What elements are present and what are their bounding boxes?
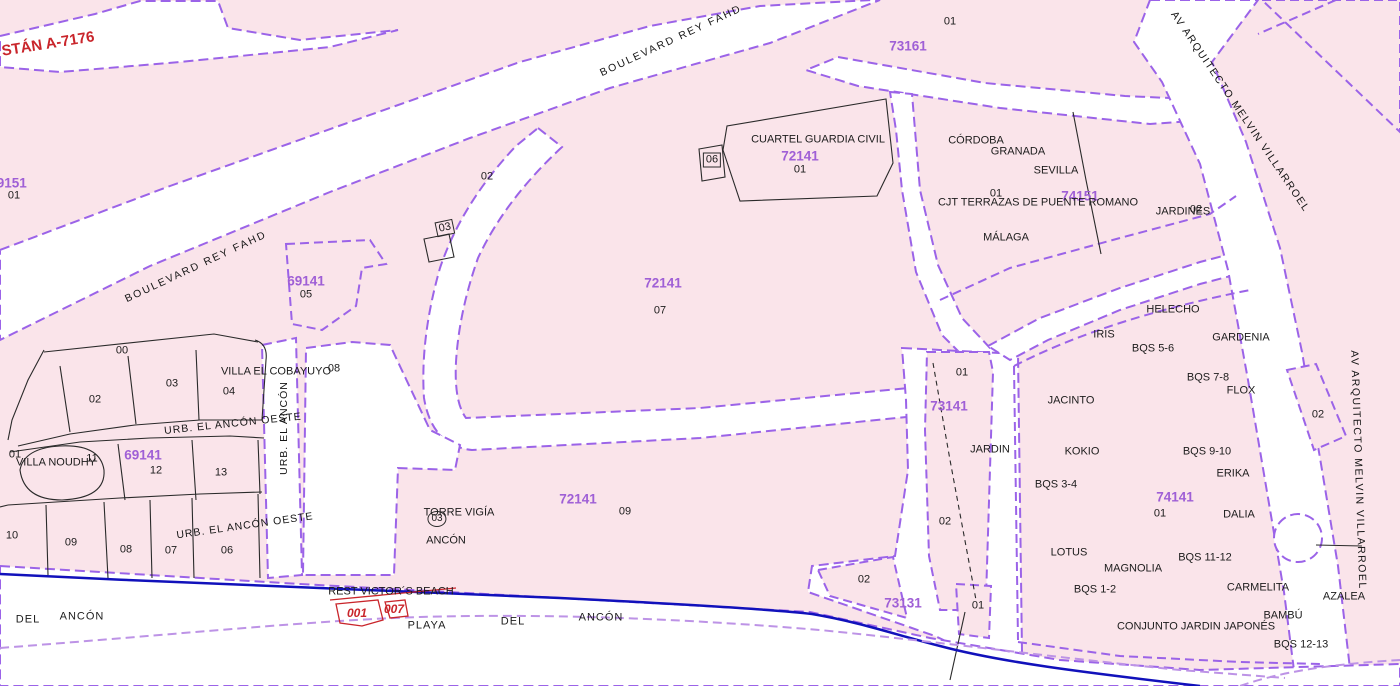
place-erika: ERIKA	[1216, 469, 1249, 480]
parcel-ref-73131: 73131	[884, 596, 922, 610]
place-dalia: DALIA	[1223, 510, 1255, 521]
parcel-ref-69151: 69151	[0, 176, 27, 190]
place-malaga: MÁLAGA	[983, 233, 1029, 244]
parcel-ref-72141-09: 72141	[559, 492, 597, 506]
parcel-ref-73141: 73141	[930, 399, 968, 413]
parcel-num-05: 05	[300, 290, 312, 301]
parcel-num-09-72141: 09	[619, 507, 631, 518]
beach-plot-ref-001: 001	[347, 607, 367, 619]
place-bqs-1-2: BQS 1-2	[1074, 585, 1116, 596]
place-villa-noudhy: VILLA NOUDHY	[16, 458, 96, 469]
place-flox: FLOX	[1227, 386, 1256, 397]
place-jardines: JARDINES	[1156, 207, 1210, 218]
parcel-num-01-73131: 01	[972, 601, 984, 612]
parcel-ref-69141-05: 69141	[287, 274, 325, 288]
place-granada: GRANADA	[991, 147, 1045, 158]
place-bqs-3-4: BQS 3-4	[1035, 480, 1077, 491]
cadastral-map[interactable]: BOULEVARD REY FAHDBOULEVARD REY FAHDAV A…	[0, 0, 1400, 686]
parcel-num-04: 04	[223, 387, 235, 398]
parcel-num-02-73141: 02	[939, 517, 951, 528]
parcel-num-01-74141: 01	[1154, 509, 1166, 520]
place-playa-ancon: ANCÓN	[579, 613, 624, 624]
parcel-num-07: 07	[654, 306, 666, 317]
street-boulevard-rey-fahd-east: BOULEVARD REY FAHD	[598, 3, 743, 78]
parcel-ref-74141: 74141	[1156, 490, 1194, 504]
parcel-num-09: 09	[65, 538, 77, 549]
place-bqs-9-10: BQS 9-10	[1183, 447, 1231, 458]
place-playa: PLAYA	[408, 621, 447, 632]
place-iris: IRIS	[1093, 330, 1114, 341]
place-azalea: AZALEA	[1323, 592, 1365, 603]
place-bqs-12-13: BQS 12-13	[1274, 640, 1328, 651]
place-lotus: LOTUS	[1051, 548, 1088, 559]
parcel-num-03-box: 03	[435, 219, 456, 237]
place-ancon-torre: ANCÓN	[426, 536, 466, 547]
place-jacinto: JACINTO	[1048, 396, 1095, 407]
street-av-arquitecto-melvin-villarroel-south: AV ARQUITECTO MELVIN VILLARROEL	[1349, 350, 1368, 590]
place-conjunto-jardin-japones: CONJUNTO JARDIN JAPONÉS	[1117, 622, 1275, 633]
place-cjt-terrazas-de-puente-romano: CJT TERRAZAS DE PUENTE ROMANO	[938, 198, 1138, 209]
parcel-num-00: 00	[116, 346, 128, 357]
place-del-ancon-del: DEL	[16, 615, 40, 626]
beach-plot-ref-007: 007	[384, 603, 404, 615]
place-sevilla: SEVILLA	[1034, 166, 1079, 177]
parcel-num-10: 10	[6, 531, 18, 542]
parcel-num-02: 02	[89, 395, 101, 406]
parcel-num-01-cuartel: 01	[794, 165, 806, 176]
parcel-ref-72141-07: 72141	[644, 276, 682, 290]
place-bqs-7-8: BQS 7-8	[1187, 373, 1229, 384]
street-av-arquitecto-melvin-villarroel-north: AV ARQUITECTO MELVIN VILLARROEL	[1169, 10, 1312, 215]
road-ref-a-7176: STÁN A-7176	[1, 29, 96, 58]
place-kokio: KOKIO	[1065, 447, 1100, 458]
place-carmelita: CARMELITA	[1227, 583, 1289, 594]
street-urb-el-ancon-oeste-2: URB. EL ANCÓN OESTE	[176, 511, 314, 541]
place-gardenia: GARDENIA	[1212, 333, 1269, 344]
parcel-num-06-row: 06	[221, 546, 233, 557]
parcel-num-03: 03	[166, 379, 178, 390]
place-torre-vigia: TORRE VIGÍA	[424, 508, 495, 519]
map-labels-layer: BOULEVARD REY FAHDBOULEVARD REY FAHDAV A…	[0, 0, 1400, 686]
place-helecho: HELECHO	[1146, 305, 1199, 316]
parcel-num-06-box: 06	[703, 153, 721, 168]
parcel-num-01-73161: 01	[944, 17, 956, 28]
parcel-num-02-avenue: 02	[1312, 410, 1324, 421]
place-magnolia: MAGNOLIA	[1104, 564, 1162, 575]
place-villa-el-cobayuyo: VILLA EL COBAYUYO	[221, 367, 331, 378]
street-boulevard-rey-fahd-west: BOULEVARD REY FAHD	[123, 229, 268, 304]
parcel-num-02-wedge: 02	[481, 172, 493, 183]
parcel-ref-73161: 73161	[889, 39, 927, 53]
parcel-num-01-69151: 01	[8, 191, 20, 202]
street-urb-el-ancon: URB. EL ANCÓN	[279, 381, 290, 475]
place-bqs-5-6: BQS 5-6	[1132, 344, 1174, 355]
place-playa-del: DEL	[501, 617, 525, 628]
place-rest-victors-beach: REST VICTOR´S BEACH	[328, 587, 454, 598]
parcel-num-02-73131: 02	[858, 575, 870, 586]
parcel-ref-69141-sur: 69141	[124, 448, 162, 462]
place-bqs-11-12: BQS 11-12	[1178, 553, 1232, 564]
parcel-num-01-73141: 01	[956, 368, 968, 379]
parcel-ref-72141-cuartel: 72141	[781, 149, 819, 163]
place-cuartel-guardia-civil: CUARTEL GUARDIA CIVIL	[751, 135, 885, 146]
parcel-num-07-row: 07	[165, 546, 177, 557]
parcel-num-13: 13	[215, 468, 227, 479]
parcel-num-08: 08	[120, 545, 132, 556]
place-jardin: JARDIN	[970, 445, 1010, 456]
place-del-ancon-ancon: ANCÓN	[60, 612, 105, 623]
parcel-num-12: 12	[150, 466, 162, 477]
